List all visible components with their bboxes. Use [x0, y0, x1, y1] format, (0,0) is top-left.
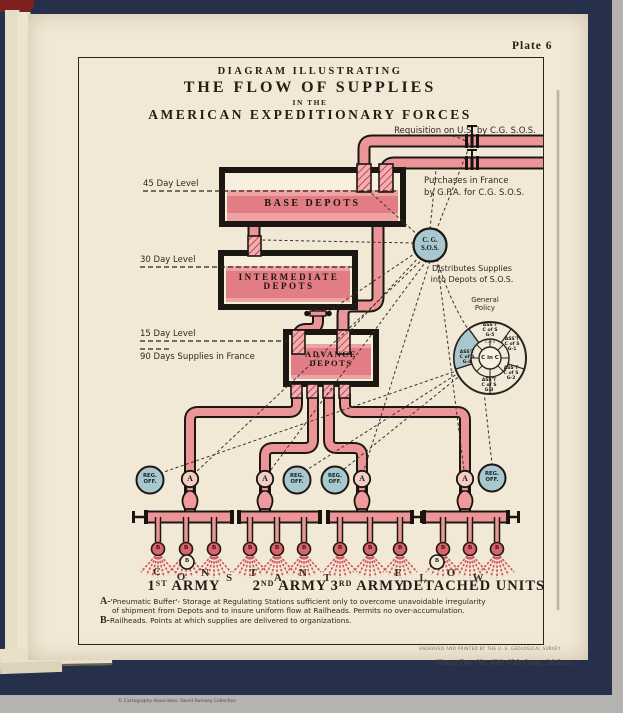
cg-label-line2: S.O.S.	[412, 245, 448, 253]
advance-label-line2: DEPOTS	[291, 359, 371, 368]
purchases-note-line1: Purchases in France	[424, 176, 508, 186]
page-crease-shadow	[556, 90, 560, 610]
railhead-b-label: B	[181, 545, 191, 551]
base-depots-label: BASE DEPOTS	[228, 198, 397, 209]
advance-depots-label: ADVANCE DEPOTS	[291, 350, 371, 368]
policy-line2: Policy	[460, 304, 510, 312]
railhead-b-label: B	[438, 545, 448, 551]
distributes-note-line1: Distributes Supplies	[412, 264, 532, 273]
footnote-b-prefix: B-	[100, 615, 110, 626]
army-label-detached: DETACHED UNITS	[402, 578, 542, 595]
railhead-b-label: B	[153, 545, 163, 551]
footnote-a-prefix: A-	[100, 596, 111, 607]
staff-segment-g3: ASS'TC of SG-3	[474, 378, 504, 393]
railhead-legend-b: B	[182, 558, 192, 564]
house-doc-citation: House Doc. No. 626; 65th Cong., 2d Sess.	[437, 658, 573, 667]
buffer-a-label: A	[184, 474, 196, 483]
flow-letter: C	[151, 566, 163, 578]
railhead-b-label: B	[492, 545, 502, 551]
general-policy-note: General Policy	[460, 296, 510, 312]
staff-center-label: C in C	[475, 355, 505, 361]
page-corner-stack	[0, 661, 62, 674]
level-15-label: 15 Day Level	[140, 329, 195, 339]
reg-off-label: REG.OFF.	[320, 474, 350, 485]
buffer-a-label: A	[459, 474, 471, 483]
footnote-b-line: B-Railheads. Points at which supplies ar…	[100, 615, 351, 626]
staff-segment-g5: ASS'TC of SG-5	[475, 323, 505, 338]
buffer-a-label: A	[259, 474, 271, 483]
railhead-b-label: B	[299, 545, 309, 551]
intermediate-label-line2: DEPOTS	[227, 282, 351, 291]
scan-backdrop-bottom	[0, 695, 623, 713]
collection-credit: © Cartography Associates. David Rumsey C…	[118, 699, 236, 704]
level-45-label: 45 Day Level	[143, 179, 198, 189]
reg-off-label: REG.OFF.	[135, 474, 165, 485]
railhead-legend-b: B	[432, 558, 442, 564]
railhead-b-label: B	[272, 545, 282, 551]
scanned-book-page: Plate 6 DIAGRAM ILLUSTRATING THE FLOW OF…	[0, 0, 623, 713]
railhead-b-label: B	[395, 545, 405, 551]
footnote-a-line2: of shipment from Depots and to insure un…	[112, 606, 465, 615]
railhead-b-label: B	[245, 545, 255, 551]
railhead-b-label: B	[209, 545, 219, 551]
level-30-label: 30 Day Level	[140, 255, 195, 265]
railhead-b-label: B	[465, 545, 475, 551]
cg-sos-label: C. G. S.O.S.	[412, 237, 448, 252]
policy-line1: General	[460, 296, 510, 304]
buffer-a-label: A	[356, 474, 368, 483]
intermediate-depots-label: INTERMEDIATE DEPOTS	[227, 273, 351, 291]
requisition-note: Requisition on U.S. by C.G. S.O.S.	[385, 126, 545, 136]
plate-label: Plate 6	[512, 40, 553, 52]
army-label-3rd: 3RD ARMY	[323, 578, 413, 595]
reg-off-label: REG.OFF.	[477, 472, 507, 483]
supplies-90-note: 90 Days Supplies in France	[140, 352, 255, 362]
title-line1: DIAGRAM ILLUSTRATING	[78, 66, 542, 77]
army-label-1st: 1ST ARMY	[139, 578, 229, 595]
staff-ring-label: C of S	[475, 340, 505, 344]
reg-off-label: REG.OFF.	[282, 474, 312, 485]
railhead-b-label: B	[335, 545, 345, 551]
railhead-b-label: B	[365, 545, 375, 551]
army-label-2nd: 2ND ARMY	[245, 578, 335, 595]
engraver-credit: ENGRAVED AND PRINTED BY THE U. S. GEOLOG…	[400, 646, 580, 651]
scan-backdrop-right	[612, 0, 623, 713]
title-line2: THE FLOW OF SUPPLIES	[78, 79, 542, 97]
title-line4: AMERICAN EXPEDITIONARY FORCES	[78, 107, 542, 123]
cg-label-line1: C. G.	[412, 237, 448, 245]
purchases-note-line2: by G.P.A. for C.G. S.O.S.	[424, 188, 524, 198]
title-line3: IN THE	[78, 98, 542, 107]
distributes-note-line2: into Depots of S.O.S.	[412, 275, 532, 284]
